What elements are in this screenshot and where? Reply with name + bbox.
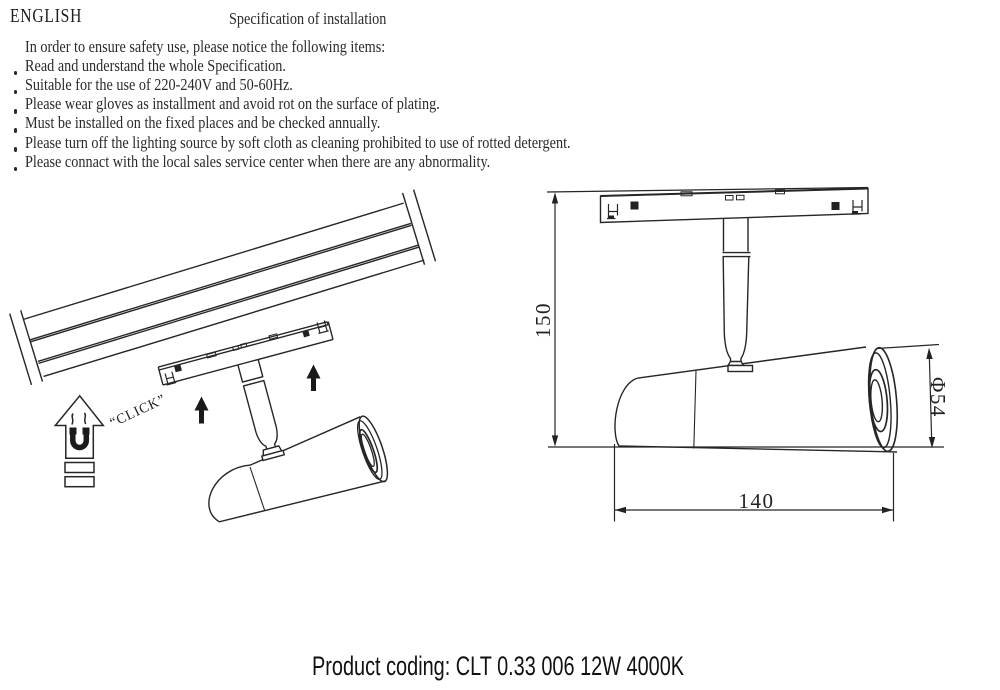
svg-text:“CLICK”: “CLICK” [108, 392, 169, 431]
svg-text:Φ54: Φ54 [926, 377, 950, 418]
svg-text:140: 140 [739, 489, 775, 513]
svg-text:150: 150 [531, 302, 555, 338]
